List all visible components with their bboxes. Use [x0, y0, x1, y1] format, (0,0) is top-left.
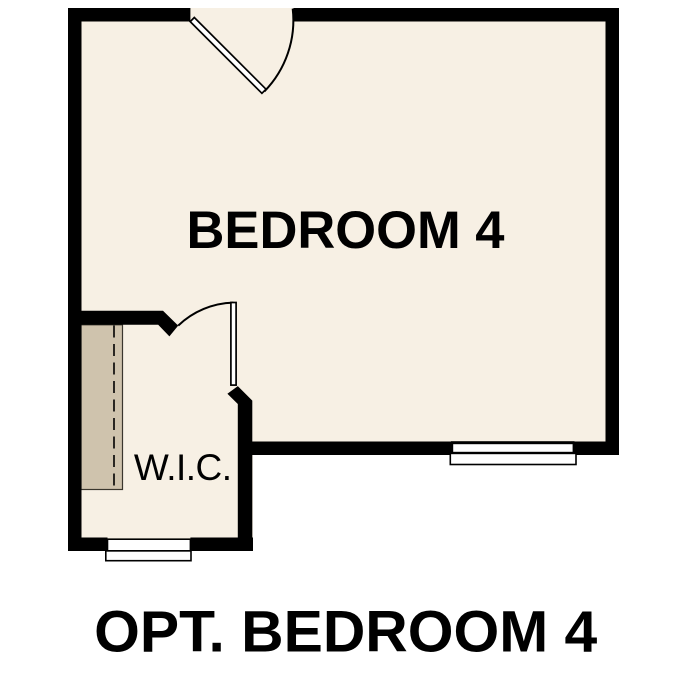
svg-text:OPT. BEDROOM 4: OPT. BEDROOM 4 — [94, 600, 597, 665]
svg-text:BEDROOM 4: BEDROOM 4 — [187, 201, 505, 260]
svg-text:W.I.C.: W.I.C. — [134, 447, 232, 488]
